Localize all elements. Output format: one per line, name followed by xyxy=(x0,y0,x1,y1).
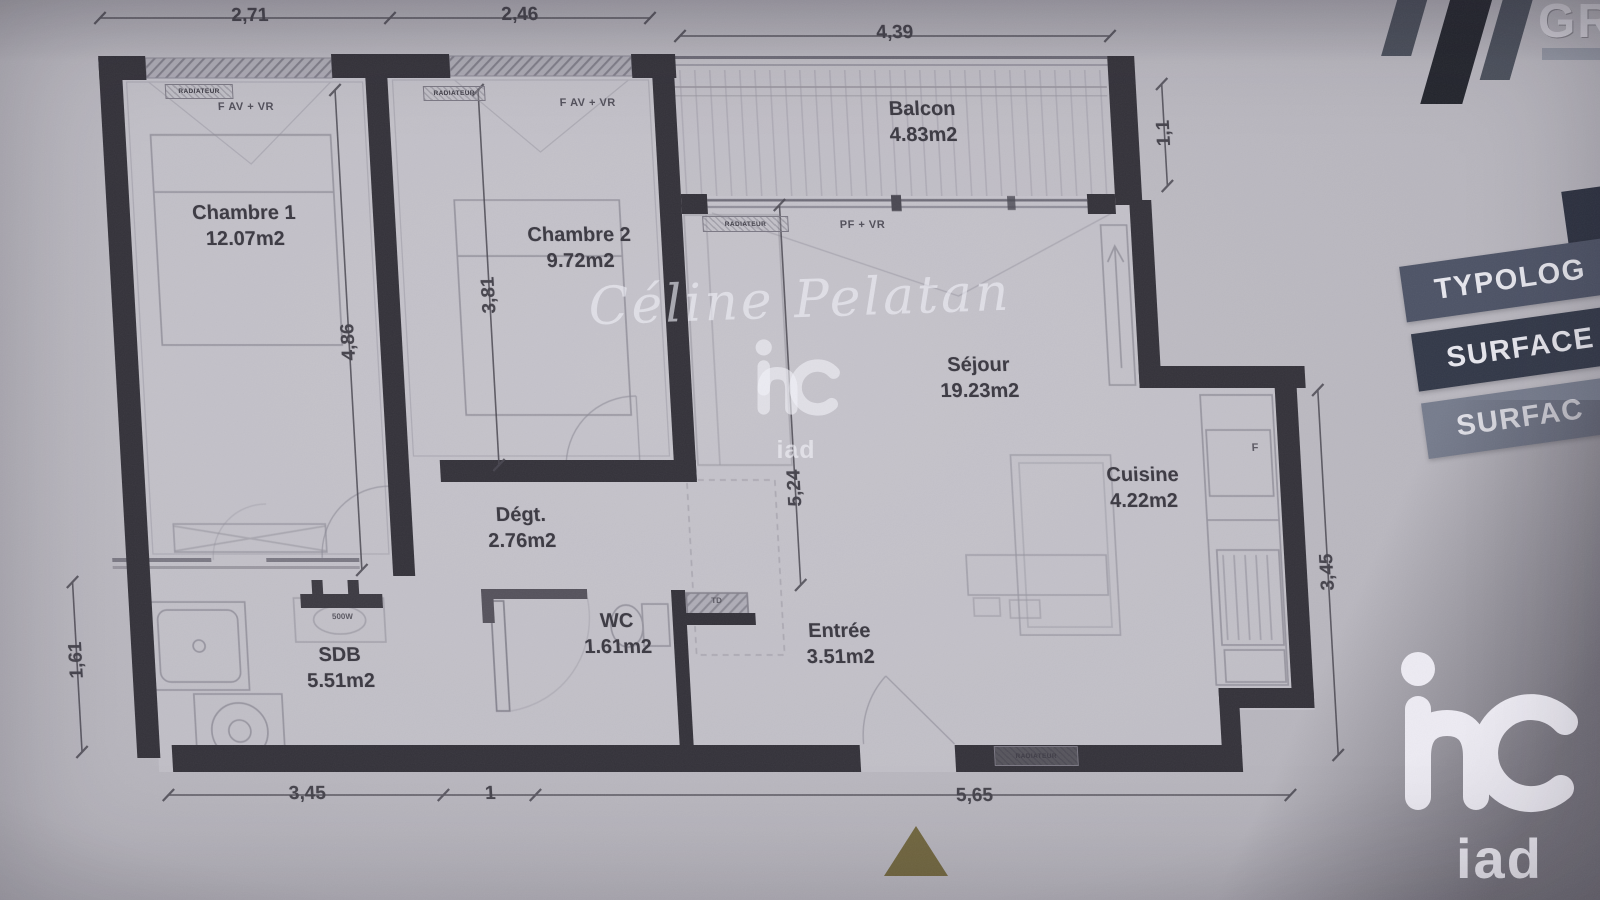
room-name: SDB xyxy=(305,642,374,668)
room-label-sdb: SDB 5.51m2 xyxy=(305,642,376,694)
towel-radiator-power-label: 500W xyxy=(332,612,353,621)
room-name: Dégt. xyxy=(486,502,555,528)
room-name: Cuisine xyxy=(1106,462,1180,488)
dim-chambre2-height: 3,81 xyxy=(477,277,501,314)
room-name: Balcon xyxy=(887,96,956,122)
room-area: 12.07m2 xyxy=(193,226,298,252)
dim-sejour-height: 5,24 xyxy=(783,470,807,507)
room-area: 2.76m2 xyxy=(488,528,557,554)
room-area: 4.83m2 xyxy=(889,122,958,148)
room-name: Séjour xyxy=(938,352,1018,378)
banner-typologie: TYPOLOG xyxy=(1399,238,1600,323)
room-area: 19.23m2 xyxy=(940,378,1020,404)
banner-surface-1: SURFACE xyxy=(1411,306,1600,391)
dim-bottom-right: 5,65 xyxy=(955,785,993,807)
dim-bottom-left: 3,45 xyxy=(288,783,326,805)
dim-balcony-depth: 1,1 xyxy=(1153,120,1176,146)
dim-top-right: 4,39 xyxy=(876,22,914,44)
room-name: Entrée xyxy=(805,618,874,644)
bay-window-label: PF + VR xyxy=(840,219,886,231)
room-area: 9.72m2 xyxy=(528,248,633,274)
duct-label: TD xyxy=(711,596,722,605)
radiator-label: RADIATEUR xyxy=(1015,753,1057,760)
banner-label: SURFACE xyxy=(1413,321,1597,379)
dim-left-side: 1,61 xyxy=(65,642,89,679)
radiator-label: RADIATEUR xyxy=(433,90,475,97)
iad-logo-icon xyxy=(1385,645,1595,815)
room-label-chambre2: Chambre 2 9.72m2 xyxy=(527,222,633,274)
room-area: 5.51m2 xyxy=(306,668,375,694)
radiator-box-chambre1: RADIATEUR xyxy=(165,84,234,99)
banner-surface-2: SURFAC xyxy=(1421,377,1600,459)
iad-watermark-icon xyxy=(748,336,848,417)
dim-top-mid: 2,46 xyxy=(501,4,539,26)
room-name: WC xyxy=(582,608,651,634)
north-triangle-icon xyxy=(884,826,948,876)
window-label-chambre2: F AV + VR xyxy=(559,97,616,109)
radiator-box-sejour: RADIATEUR xyxy=(702,216,789,232)
corner-brand-fragment: GR xyxy=(1538,0,1600,49)
room-area: 4.22m2 xyxy=(1107,488,1181,514)
dim-right-side: 3,45 xyxy=(1316,554,1340,591)
iad-logo-text: iad xyxy=(1456,826,1543,891)
room-label-sejour: Séjour 19.23m2 xyxy=(938,352,1020,404)
room-label-wc: WC 1.61m2 xyxy=(582,608,653,660)
watermark-brand-text: iad xyxy=(776,436,815,465)
window-label-chambre1: F AV + VR xyxy=(218,101,275,113)
floorplan-drawing xyxy=(60,0,1398,860)
room-area: 3.51m2 xyxy=(806,644,875,670)
floorplan: Chambre 1 12.07m2 Chambre 2 9.72m2 Balco… xyxy=(60,0,1398,860)
room-area: 1.61m2 xyxy=(584,634,653,660)
dim-chambre1-height: 4,86 xyxy=(337,324,361,361)
dim-bottom-mid: 1 xyxy=(484,783,496,805)
room-name: Chambre 1 xyxy=(191,200,296,226)
corner-logo-bar-icon xyxy=(1381,0,1429,56)
radiator-box-chambre2: RADIATEUR xyxy=(423,86,486,101)
room-label-chambre1: Chambre 1 12.07m2 xyxy=(191,200,297,252)
room-name: Chambre 2 xyxy=(527,222,632,248)
room-label-entree: Entrée 3.51m2 xyxy=(805,618,876,670)
banner-label: SURFAC xyxy=(1423,393,1586,448)
radiator-label: RADIATEUR xyxy=(178,88,220,95)
room-label-cuisine: Cuisine 4.22m2 xyxy=(1106,462,1181,514)
corner-brand-underbar xyxy=(1542,48,1600,60)
radiator-label: RADIATEUR xyxy=(725,221,767,228)
radiator-box-entree: RADIATEUR xyxy=(994,746,1079,766)
dim-top-left: 2,71 xyxy=(231,5,269,27)
floorplan-photo: Chambre 1 12.07m2 Chambre 2 9.72m2 Balco… xyxy=(0,0,1600,900)
banner-label: TYPOLOG xyxy=(1401,253,1588,311)
fridge-label: F xyxy=(1251,442,1258,454)
room-label-degt: Dégt. 2.76m2 xyxy=(486,502,557,554)
corner-logo-bar-icon xyxy=(1420,0,1494,104)
room-label-balcon: Balcon 4.83m2 xyxy=(887,96,958,148)
